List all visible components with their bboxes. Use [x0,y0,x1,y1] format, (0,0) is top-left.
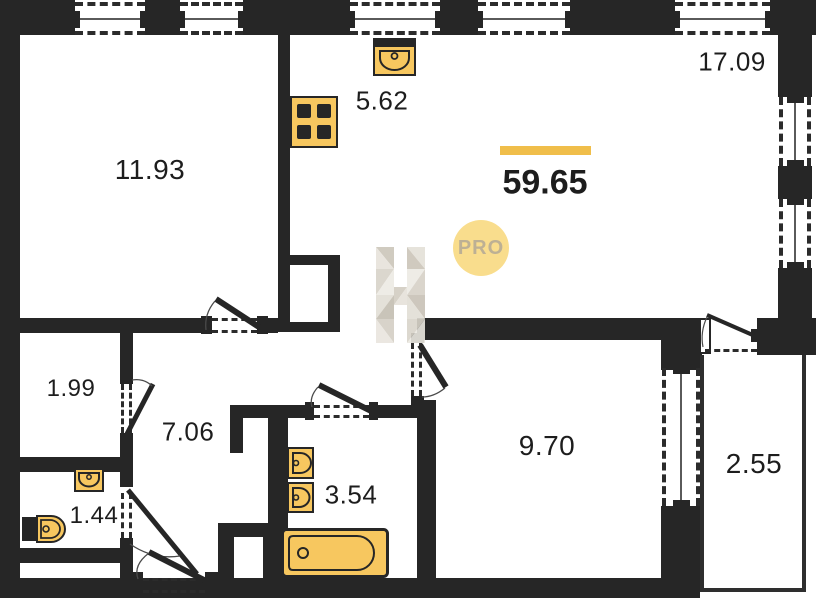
wall [417,318,665,340]
door-threshold [143,590,205,593]
window-cap [787,160,804,171]
door-post [130,572,143,598]
window-cap [175,11,185,28]
pro-badge-text: PRO [458,237,504,260]
wall [0,0,20,598]
window [779,97,811,166]
window-cap [238,11,248,28]
wall [120,333,133,377]
door-opening [411,343,422,396]
window-cap [345,11,355,28]
window [779,199,811,268]
window-cap [70,11,80,28]
bathroom-sink-icon [287,447,314,479]
window-cap [673,363,690,374]
door-opening [314,405,369,418]
window [675,2,770,35]
window [478,2,570,35]
window-cap [787,194,804,205]
door-post [205,572,218,598]
bedroom-area-label: 9.70 [519,430,576,462]
window-cap [435,11,445,28]
wall [230,405,243,453]
hallway-area-label: 7.06 [162,417,215,448]
room-area-label: 11.93 [115,154,186,186]
balcony-wall [700,355,704,592]
wall [0,578,670,598]
toilet-icon [287,482,314,513]
wall [417,400,436,578]
wall [778,0,812,97]
wall [278,322,340,332]
duct-shaft [218,523,275,578]
window-cap [670,11,680,28]
door-post [751,329,761,342]
window [350,2,440,35]
door-post [201,316,212,334]
window [180,2,243,35]
wall [266,318,278,333]
door-threshold [705,349,757,352]
wall [328,255,340,332]
bathtub-icon [281,528,389,578]
balcony-area-label: 2.55 [726,448,783,480]
window-cap [140,11,150,28]
wc-toilet-icon [22,515,68,543]
living-area-label: 17.09 [698,47,766,78]
kitchen-area-label: 5.62 [356,86,409,117]
wall [243,0,350,35]
wall [0,0,75,35]
kitchen-sink-icon [373,38,416,76]
wall [757,318,816,355]
wall [18,548,120,563]
stove-icon [290,96,338,148]
door-opening [121,384,132,433]
wc-area-label: 1.44 [70,502,119,530]
door-post [305,402,314,420]
floor-plan: PRO 11.93 5.62 17.09 59.65 1.99 7.06 3.5… [0,0,816,600]
bathroom-area-label: 3.54 [325,480,378,511]
window-cap [565,11,575,28]
window-cap [473,11,483,28]
window [662,368,700,506]
wc-sink-icon [74,463,104,492]
wall [278,35,290,330]
door-post [120,373,133,384]
window-cap [787,92,804,103]
wall [20,318,202,333]
door-opening [121,493,132,538]
brand-watermark [376,247,426,343]
window [75,2,145,35]
balcony-wall [700,588,806,592]
pro-badge: PRO [453,220,509,276]
wall [570,0,675,35]
window-cap [765,11,775,28]
door-opening [212,318,257,333]
door-threshold [143,578,205,581]
wall [661,506,700,598]
total-area-accent-bar [500,146,591,155]
balcony-wall [802,355,806,592]
total-area-label: 59.65 [502,164,587,203]
storage-area-label: 1.99 [47,375,96,403]
window-cap [787,262,804,273]
wall [665,318,702,355]
